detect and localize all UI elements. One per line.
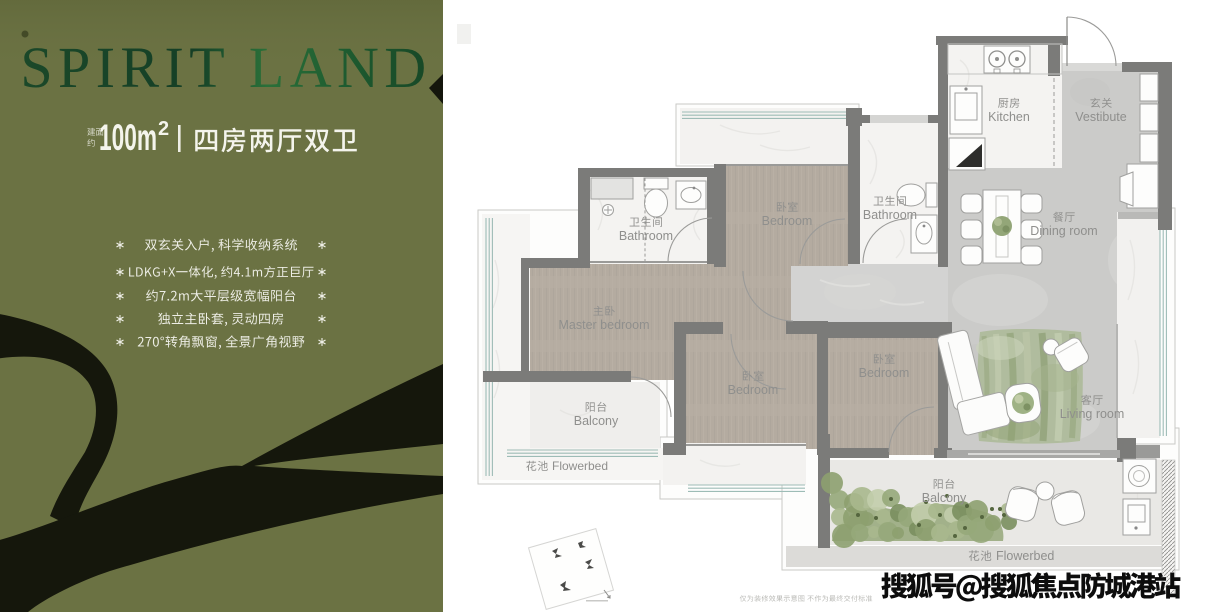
svg-text:Bathroom: Bathroom	[619, 229, 673, 243]
svg-text:Balcony: Balcony	[922, 491, 967, 505]
svg-text:SPIRIT LAND: SPIRIT LAND	[20, 35, 431, 100]
svg-text:Flowerbed: Flowerbed	[996, 549, 1054, 563]
svg-text:Balcony: Balcony	[574, 414, 619, 428]
svg-text:Bedroom: Bedroom	[762, 214, 813, 228]
svg-text:Flowerbed: Flowerbed	[552, 459, 608, 473]
svg-text:Kitchen: Kitchen	[988, 110, 1030, 124]
svg-text:2: 2	[158, 118, 169, 140]
svg-text:Bedroom: Bedroom	[728, 383, 779, 397]
svg-text:Living room: Living room	[1060, 407, 1125, 421]
svg-text:Dining room: Dining room	[1030, 224, 1097, 238]
svg-text:Bedroom: Bedroom	[859, 366, 910, 380]
svg-text:Master bedroom: Master bedroom	[558, 318, 649, 332]
svg-text:Bathroom: Bathroom	[863, 208, 917, 222]
svg-text:100m: 100m	[99, 117, 157, 158]
svg-text:Vestibute: Vestibute	[1075, 110, 1126, 124]
